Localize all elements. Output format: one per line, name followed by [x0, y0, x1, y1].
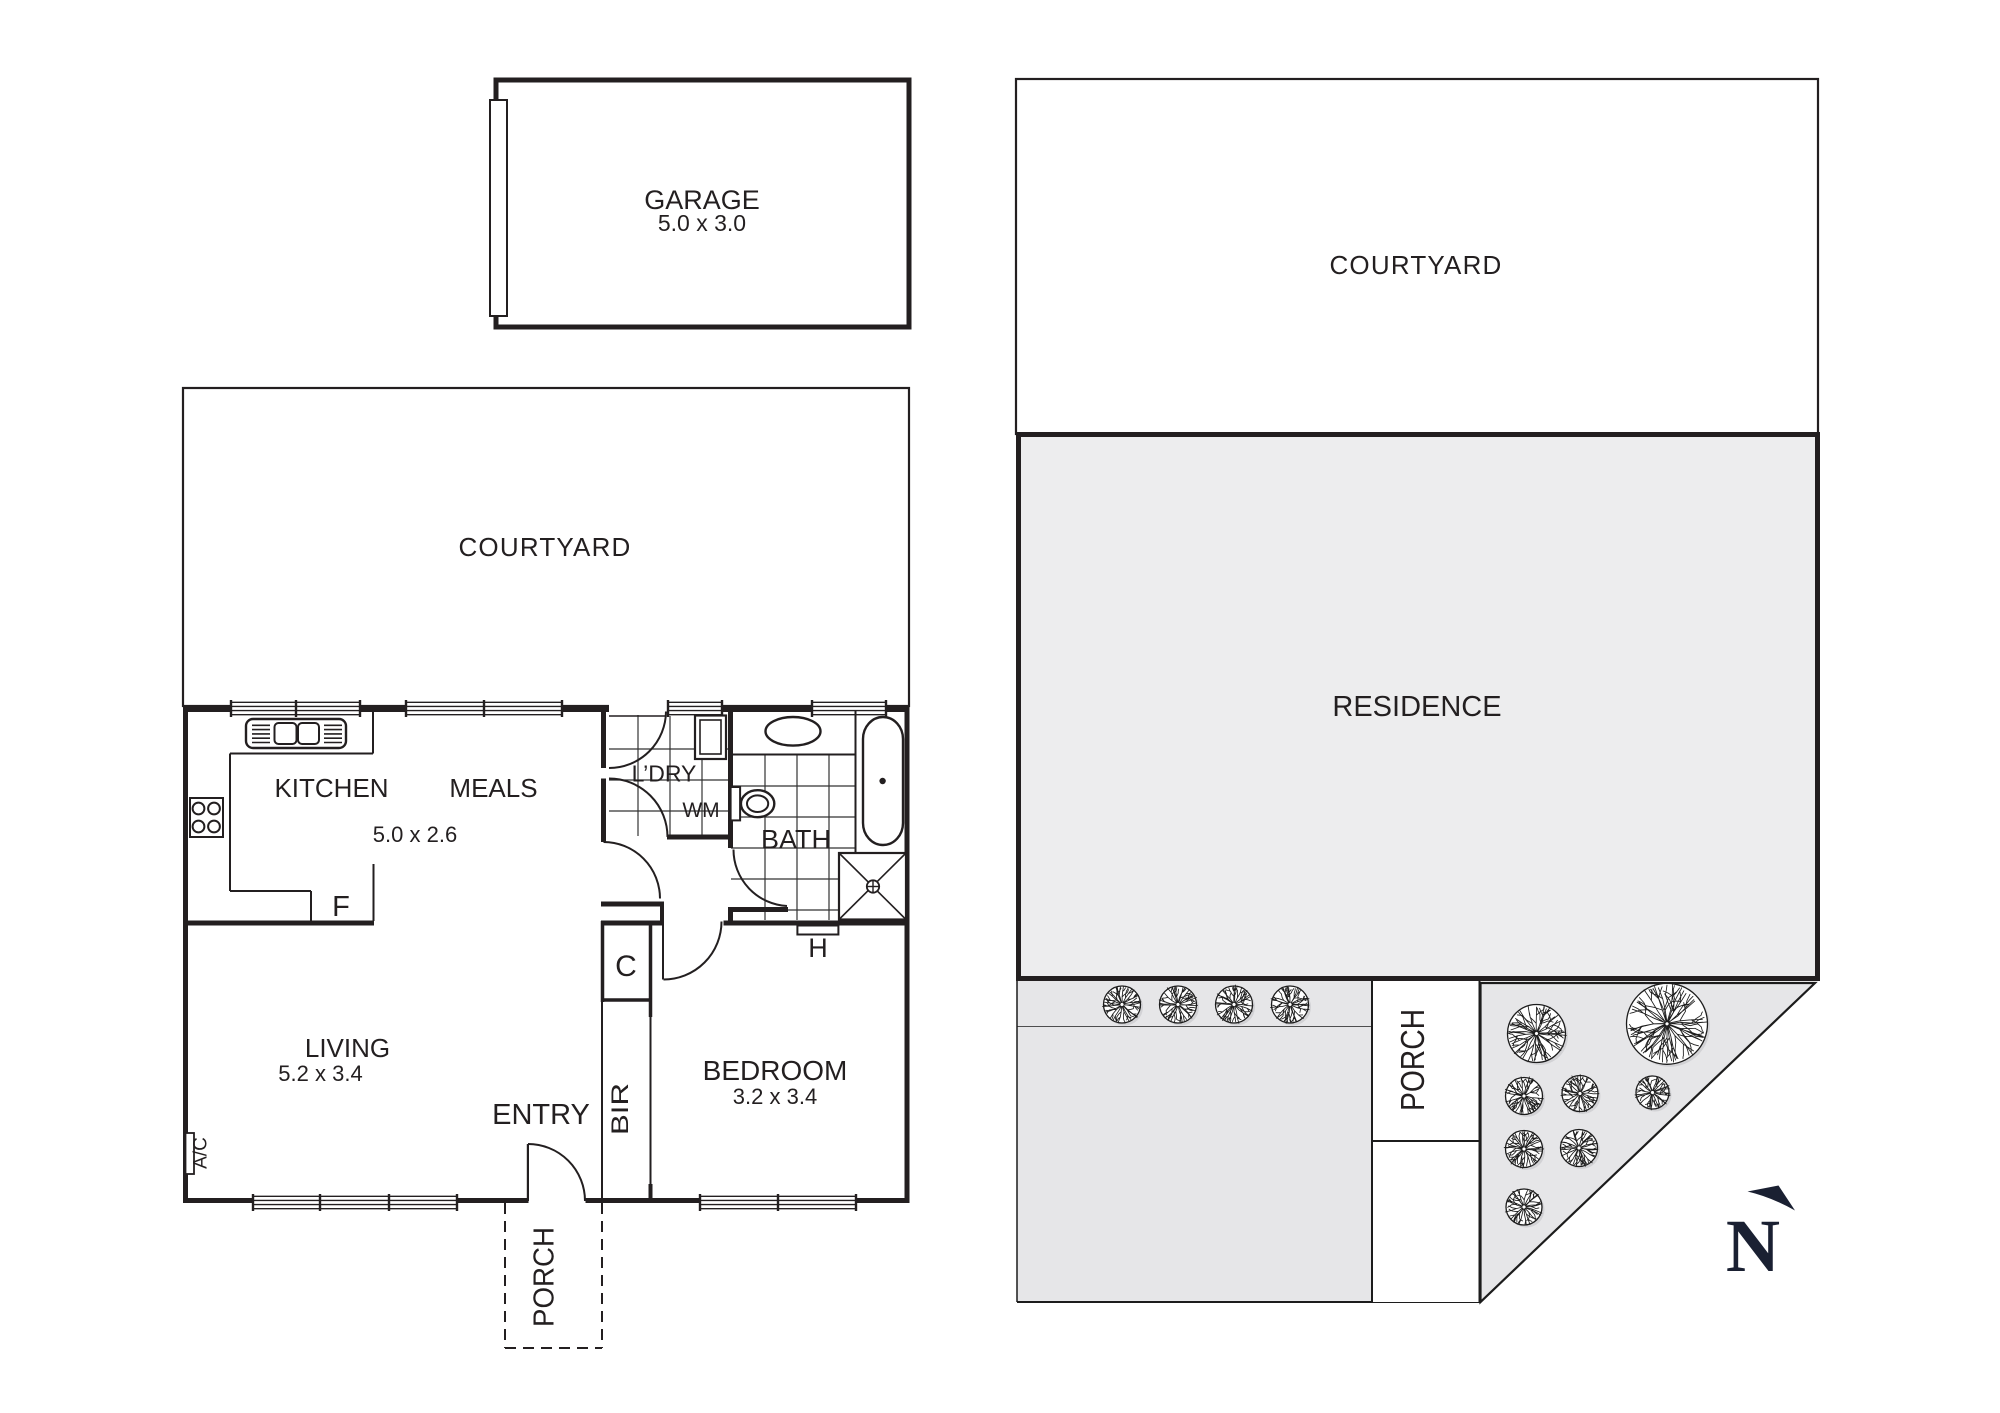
svg-text:L’DRY: L’DRY	[632, 761, 697, 787]
svg-text:BIR: BIR	[607, 1083, 634, 1135]
svg-text:RESIDENCE: RESIDENCE	[1332, 691, 1501, 723]
svg-text:LIVING: LIVING	[305, 1033, 390, 1063]
svg-text:H: H	[808, 933, 828, 963]
svg-text:KITCHEN: KITCHEN	[274, 773, 388, 803]
svg-text:F: F	[332, 891, 350, 923]
svg-text:BATH: BATH	[761, 825, 831, 855]
svg-text:PORCH: PORCH	[529, 1227, 561, 1327]
svg-text:5.2 x 3.4: 5.2 x 3.4	[278, 1061, 362, 1086]
svg-text:N: N	[1726, 1205, 1780, 1288]
svg-text:WM: WM	[682, 799, 719, 822]
svg-text:C: C	[615, 950, 637, 983]
svg-text:ENTRY: ENTRY	[492, 1099, 590, 1131]
svg-text:PORCH: PORCH	[1394, 1009, 1431, 1111]
svg-text:5.0 x 2.6: 5.0 x 2.6	[373, 822, 457, 847]
svg-text:5.0 x 3.0: 5.0 x 3.0	[658, 210, 746, 236]
svg-text:COURTYARD: COURTYARD	[1329, 250, 1502, 280]
svg-text:3.2 x 3.4: 3.2 x 3.4	[733, 1084, 817, 1109]
svg-text:MEALS: MEALS	[449, 773, 537, 803]
svg-text:BEDROOM: BEDROOM	[703, 1055, 848, 1086]
svg-text:A/C: A/C	[191, 1137, 212, 1169]
svg-text:COURTYARD: COURTYARD	[458, 532, 631, 562]
